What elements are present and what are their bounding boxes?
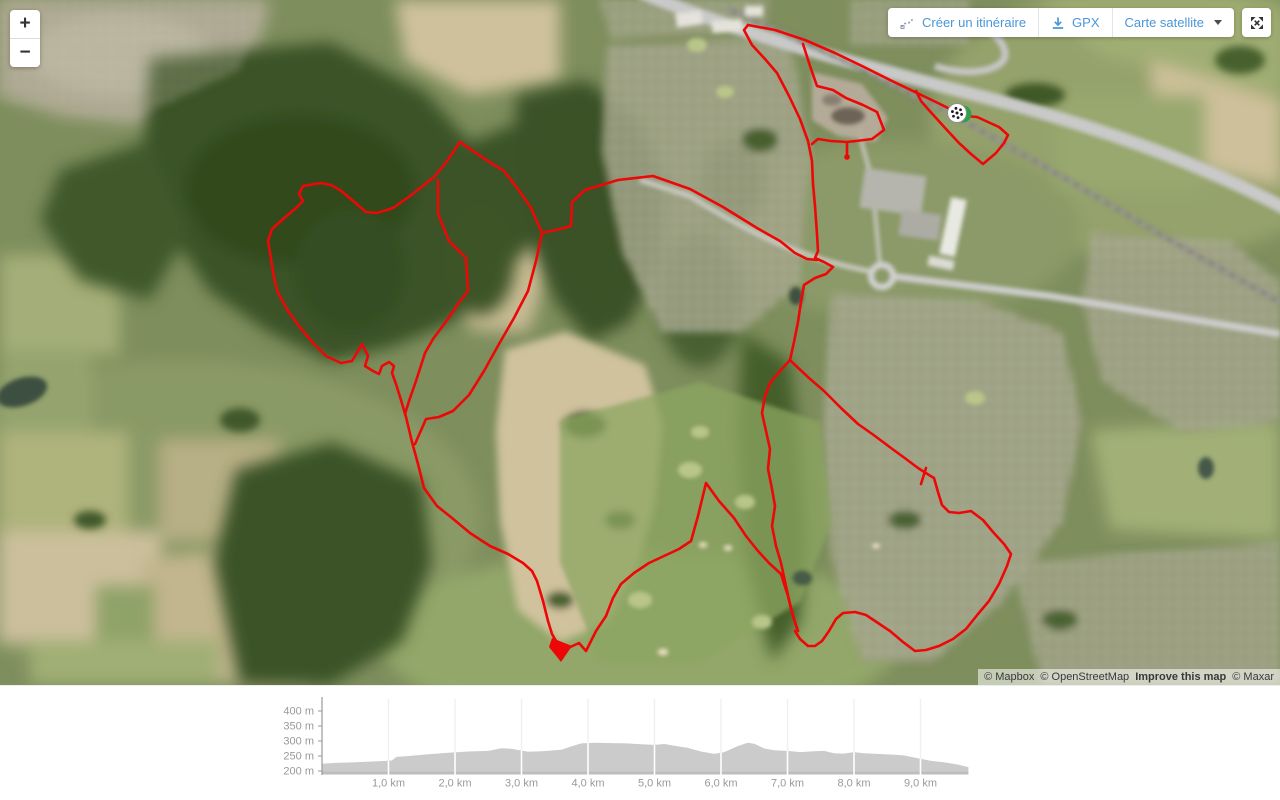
fullscreen-button[interactable]: [1242, 8, 1271, 37]
svg-text:400 m: 400 m: [283, 706, 314, 718]
svg-text:7,0 km: 7,0 km: [771, 778, 804, 790]
improve-this-map-link[interactable]: Improve this map: [1135, 671, 1226, 683]
svg-text:1,0 km: 1,0 km: [372, 778, 405, 790]
map-attribution: © Mapbox © OpenStreetMap Improve this ma…: [978, 669, 1280, 685]
create-route-label: Créer un itinéraire: [922, 15, 1026, 30]
layer-select-button[interactable]: Carte satellite: [1112, 8, 1234, 37]
map-canvas[interactable]: + − Créer un itinéraire GPX: [0, 0, 1280, 685]
gps-route-overlay: [0, 0, 1280, 685]
chevron-down-icon: [1214, 20, 1222, 25]
zoom-in-button[interactable]: +: [10, 10, 40, 38]
attribution-mapbox-link[interactable]: © Mapbox: [984, 671, 1034, 683]
map-toolbar: Créer un itinéraire GPX Carte satellite: [888, 8, 1271, 37]
start-marker[interactable]: [948, 104, 972, 123]
route-icon: [900, 15, 915, 30]
layer-label: Carte satellite: [1125, 15, 1204, 30]
route-planner-app: + − Créer un itinéraire GPX: [0, 0, 1280, 800]
gpx-download-button[interactable]: GPX: [1038, 8, 1111, 37]
attribution-osm-link[interactable]: © OpenStreetMap: [1040, 671, 1129, 683]
gpx-label: GPX: [1072, 15, 1099, 30]
svg-text:300 m: 300 m: [283, 736, 314, 748]
fullscreen-icon: [1249, 15, 1265, 31]
svg-text:5,0 km: 5,0 km: [638, 778, 671, 790]
svg-text:2,0 km: 2,0 km: [438, 778, 471, 790]
svg-text:4,0 km: 4,0 km: [571, 778, 604, 790]
svg-text:350 m: 350 m: [283, 721, 314, 733]
svg-text:3,0 km: 3,0 km: [505, 778, 538, 790]
svg-text:250 m: 250 m: [283, 751, 314, 763]
svg-text:200 m: 200 m: [283, 766, 314, 778]
attribution-maxar-link[interactable]: © Maxar: [1232, 671, 1274, 683]
elevation-panel: 400 m350 m300 m250 m200 m1,0 km2,0 km3,0…: [0, 685, 1280, 800]
create-route-button[interactable]: Créer un itinéraire: [888, 8, 1038, 37]
toolbar-button-group: Créer un itinéraire GPX Carte satellite: [888, 8, 1234, 37]
zoom-control: + −: [10, 10, 40, 67]
svg-text:6,0 km: 6,0 km: [704, 778, 737, 790]
route-track: [268, 25, 1011, 662]
svg-text:8,0 km: 8,0 km: [837, 778, 870, 790]
elevation-profile-chart: 400 m350 m300 m250 m200 m1,0 km2,0 km3,0…: [0, 686, 1280, 800]
zoom-out-button[interactable]: −: [10, 38, 40, 67]
svg-text:9,0 km: 9,0 km: [904, 778, 937, 790]
download-icon: [1051, 16, 1065, 30]
